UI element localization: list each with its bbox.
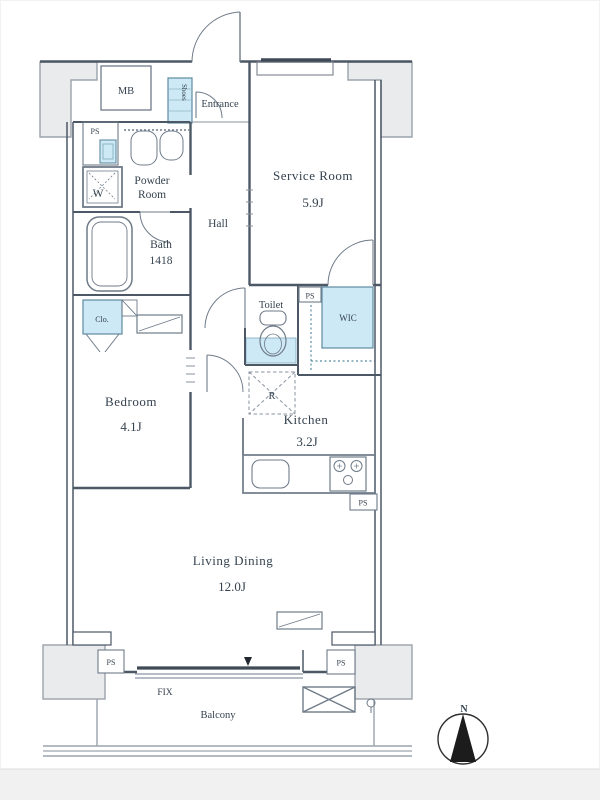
- label-closet: Clo.: [95, 315, 109, 324]
- label-shoes: Shoes: [180, 84, 188, 101]
- balcony-rails: [43, 699, 412, 756]
- hall-door: [207, 355, 243, 392]
- label-powder-2: Room: [138, 189, 166, 201]
- toilet-floor: [246, 338, 296, 363]
- label-kitchen-size: 3.2J: [296, 434, 317, 449]
- label-service-room: Service Room: [273, 168, 353, 183]
- toilet-door: [205, 288, 245, 328]
- ps-label-4: PS: [107, 658, 116, 667]
- pillar-top-right: [348, 62, 412, 137]
- kitchen-sink: [252, 460, 289, 488]
- ps-label-3: PS: [359, 499, 368, 508]
- label-washer: W: [93, 188, 104, 200]
- ps-mini-cabinet: [100, 140, 116, 163]
- ld-sliding-panel: [277, 612, 322, 629]
- label-bath: Bath: [150, 239, 172, 251]
- label-mb: MB: [118, 86, 134, 97]
- compass-north-label: N: [460, 704, 468, 715]
- label-powder-1: Powder: [134, 175, 169, 187]
- compass: N: [438, 704, 488, 764]
- stove: [330, 457, 366, 491]
- floorplan-svg: N MB Entrance Shoes PS W Powder Room Ser…: [0, 0, 600, 800]
- label-balcony: Balcony: [201, 710, 237, 721]
- floorplan-image: N MB Entrance Shoes PS W Powder Room Ser…: [0, 0, 600, 800]
- pillar-top-left: [40, 62, 97, 137]
- storage-fills: [83, 78, 373, 363]
- page-bottom-strip: [0, 769, 600, 800]
- kitchen-counter: [243, 455, 375, 493]
- fix-window: [135, 657, 303, 678]
- label-bedroom-size: 4.1J: [120, 419, 141, 434]
- label-refrigerator: R: [268, 391, 275, 402]
- ps-label-5: PS: [337, 659, 346, 668]
- compass-needle: [450, 714, 476, 762]
- bathtub: [87, 217, 132, 291]
- ps-label-2: PS: [306, 292, 315, 301]
- label-living-dining: Living Dining: [193, 553, 274, 568]
- evacuation-hatch: [303, 687, 355, 712]
- bath-door: [140, 212, 170, 242]
- sliding-closet-front: [137, 315, 182, 333]
- window-center-mark: [244, 657, 252, 666]
- labels: MB Entrance Shoes PS W Powder Room Servi…: [91, 84, 368, 721]
- washer-pan: [83, 167, 122, 207]
- pillars: [40, 62, 412, 699]
- label-kitchen: Kitchen: [284, 412, 329, 427]
- pillar-bottom-left: [43, 645, 105, 699]
- label-entrance: Entrance: [201, 99, 239, 110]
- closet-bifold-doors: [86, 334, 119, 352]
- label-wic: WIC: [339, 313, 357, 323]
- label-fix: FIX: [157, 688, 172, 698]
- label-bath-size: 1418: [150, 255, 173, 267]
- label-service-room-size: 5.9J: [302, 195, 323, 210]
- ps-label-1: PS: [91, 127, 100, 136]
- vanity: [124, 130, 189, 165]
- closet-hatch-box: [122, 300, 137, 316]
- label-bedroom: Bedroom: [105, 394, 157, 409]
- label-toilet: Toilet: [259, 300, 283, 311]
- entrance-door: [192, 12, 240, 62]
- service-room-door: [328, 240, 373, 285]
- label-hall: Hall: [208, 218, 228, 230]
- label-living-dining-size: 12.0J: [218, 579, 246, 594]
- pillar-bottom-right: [355, 645, 412, 699]
